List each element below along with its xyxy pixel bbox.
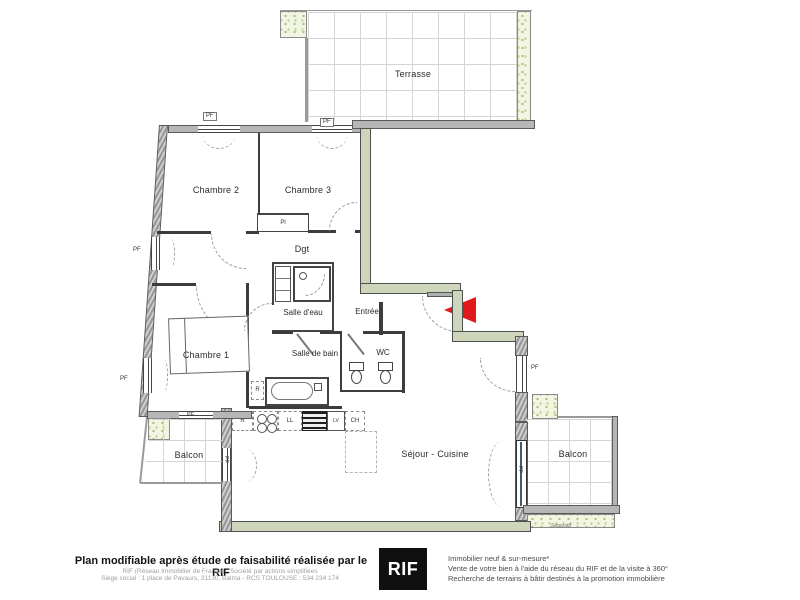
terrace-tiles: [308, 12, 518, 121]
door-leaf-wc: [347, 333, 365, 355]
pf-window-tag: PF: [320, 118, 334, 127]
window-swing-arc: [161, 239, 175, 268]
boiler-box: CH: [345, 411, 365, 431]
wall-top-right: [352, 120, 535, 129]
window-left-lower: [143, 358, 152, 393]
wall-sdb-bottom: [249, 406, 342, 409]
wall-green-vertical-upper: [360, 128, 371, 289]
room-label-chambre2: Chambre 2: [176, 185, 256, 195]
wall-hall: [272, 331, 293, 334]
room-label-chambre1: Chambre 1: [166, 350, 246, 360]
washing-machine-tag: LL: [287, 418, 294, 425]
pf-window-tag: PF: [517, 466, 523, 473]
bathroom-cabinet: [275, 266, 291, 302]
radiator-tag: R: [255, 387, 259, 394]
wall-chambre2-bottom: [157, 231, 211, 234]
room-label-balcon-left: Balcon: [156, 450, 222, 460]
cooktop-burner: [257, 423, 267, 433]
window-swing-arc: [233, 449, 257, 482]
wall-right-middle: [515, 392, 528, 422]
washing-machine-box: LL: [278, 411, 302, 431]
room-label-terrasse: Terrasse: [363, 69, 463, 79]
window-balcony-left: [222, 448, 231, 481]
wall-green-stub: [452, 290, 463, 337]
room-label-entree: Entrée: [337, 307, 397, 316]
balcony-right-wall: [612, 416, 618, 512]
balcony-right-bottom-wall: [523, 505, 620, 514]
door-arc-chambre3: [329, 202, 357, 231]
bathtub-inner: [271, 382, 313, 400]
balcony-right-top-edge: [558, 416, 618, 418]
boiler-tag: CH: [351, 418, 360, 425]
wall-sejour-bottom: [219, 521, 531, 532]
pf-window-tag: PF: [531, 365, 539, 372]
balcony-left-bottom-edge: [140, 482, 223, 484]
wall-right-upper: [515, 336, 528, 356]
terrace-edge: [280, 10, 532, 11]
terrace-planter-strip: [517, 11, 531, 121]
window-swing-arc: [480, 358, 515, 392]
footer-service-line-1: Immobilier neuf & sur-mesure*: [448, 554, 748, 563]
dishwasher-tag: LV: [333, 418, 339, 425]
cooktop-box: [253, 411, 278, 431]
terrace-planter-corner: [280, 11, 307, 38]
toilet-bowl: [380, 370, 391, 384]
bay-window-glazing: [520, 442, 522, 506]
wall-hall: [320, 331, 342, 334]
window-swing-arc: [154, 360, 168, 391]
room-label-sejour-cuisine: Séjour - Cuisine: [373, 449, 497, 459]
footer-service-line-2: Vente de votre bien à l'aide du réseau d…: [448, 564, 758, 573]
footer-service-line-3: Recherche de terrains à bâtir destinés à…: [448, 574, 758, 583]
floor-plan: Terrasse PF PF PF PF Pl Chambre 2 Chambr…: [0, 0, 800, 600]
pf-window-tag: PF: [223, 456, 229, 463]
oven: [302, 411, 327, 431]
closet: Pl: [257, 213, 309, 232]
closet-tag: Pl: [280, 220, 285, 227]
rif-logo: RIF: [379, 548, 427, 590]
pf-window-tag: PF: [203, 112, 217, 121]
window-balcony-left-top: [179, 411, 213, 419]
window-swing-arc: [316, 133, 348, 149]
room-label-wc: WC: [372, 348, 394, 357]
separator-tag: Séparatif: [551, 523, 571, 530]
wall-chambre1-top: [152, 283, 196, 286]
washbasin-bowl: [351, 370, 362, 384]
wall-hall: [363, 331, 405, 334]
wall-green-horizontal-lower: [452, 331, 524, 342]
bed-pillow: [169, 319, 187, 374]
room-label-salle-de-bain: Salle de bain: [283, 349, 347, 358]
window-chambre2: [198, 125, 240, 133]
room-label-dgt: Dgt: [282, 244, 322, 254]
dishwasher-box: LV: [327, 411, 345, 431]
cooktop-burner: [267, 423, 277, 433]
window-sejour-right: [516, 356, 527, 392]
bed: [168, 316, 250, 375]
room-label-balcon-right: Balcon: [542, 449, 604, 459]
balcony-right-planter: [532, 394, 558, 419]
pf-window-tag: PF: [133, 247, 141, 254]
wall-wc-bottom: [340, 390, 405, 392]
door-arc-chambre2: [211, 234, 246, 269]
wall-chambre2-bottom: [246, 231, 259, 234]
window-swing-arc: [202, 133, 236, 149]
radiator-box: R: [251, 381, 264, 400]
room-label-chambre3: Chambre 3: [268, 185, 348, 195]
pf-window-tag: PF: [120, 376, 128, 383]
wall-sdb-wc: [340, 331, 342, 392]
footer-address-line: Siège social : 1 place de Pavaurs, 31130…: [65, 575, 375, 583]
window-left-upper: [151, 237, 160, 270]
wall-chambre2-chambre3: [258, 133, 260, 214]
pf-window-tag: PF: [187, 412, 194, 419]
balcony-right-tiles: [527, 419, 612, 507]
wall-wc-right: [402, 331, 405, 393]
room-label-salle-deau: Salle d'eau: [272, 308, 334, 317]
bathtub-faucet: [314, 383, 322, 391]
